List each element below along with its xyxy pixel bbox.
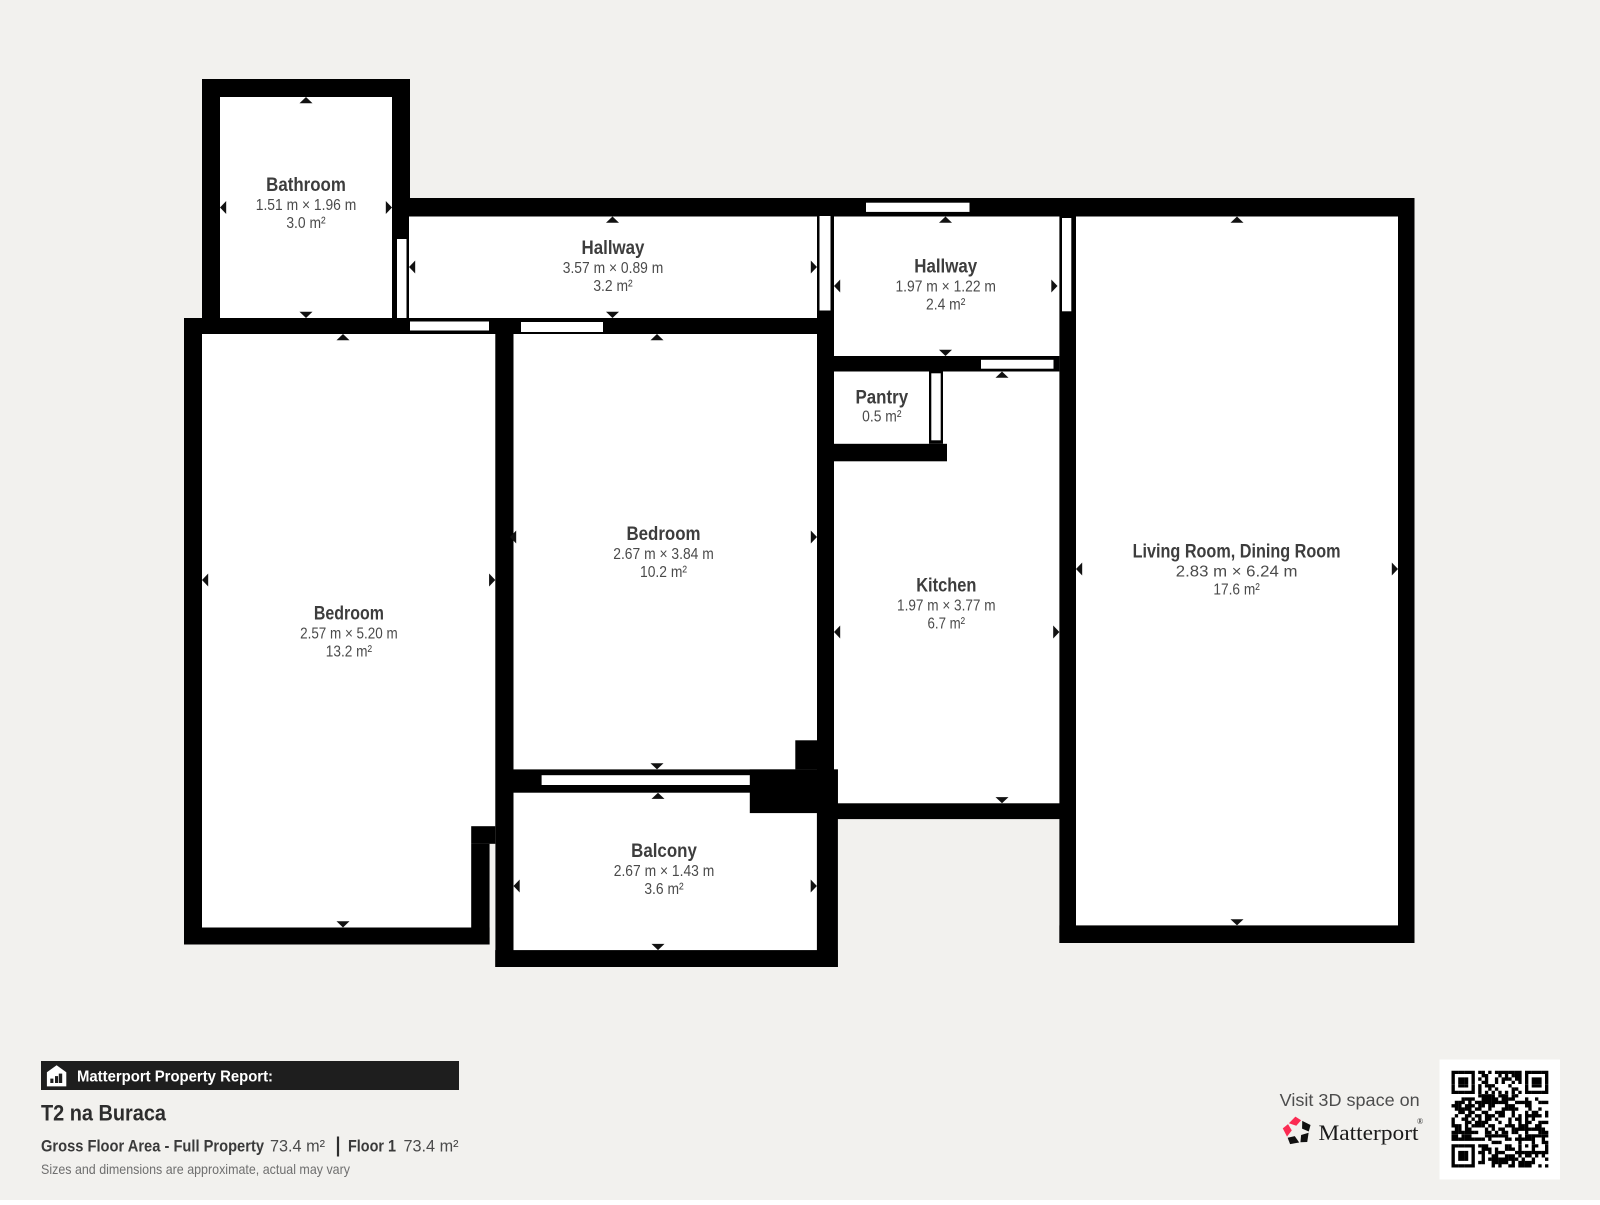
svg-text:Kitchen: Kitchen (916, 575, 976, 597)
svg-text:3.0 m²: 3.0 m² (286, 215, 326, 232)
svg-text:Bathroom: Bathroom (266, 174, 346, 196)
svg-text:1.97 m × 1.22 m: 1.97 m × 1.22 m (895, 278, 996, 295)
svg-text:Visit 3D space on: Visit 3D space on (1280, 1090, 1420, 1110)
svg-text:Bedroom: Bedroom (314, 603, 384, 625)
svg-text:Bedroom: Bedroom (626, 523, 700, 545)
svg-text:Gross Floor Area - Full Proper: Gross Floor Area - Full Property (41, 1137, 265, 1155)
svg-text:Matterport Property Report:: Matterport Property Report: (77, 1069, 273, 1086)
svg-text:®: ® (1417, 1117, 1423, 1126)
svg-text:73.4 m²: 73.4 m² (270, 1137, 325, 1155)
svg-text:10.2 m²: 10.2 m² (640, 564, 688, 581)
svg-text:2.4 m²: 2.4 m² (926, 296, 966, 313)
svg-text:T2 na Buraca: T2 na Buraca (41, 1101, 167, 1126)
svg-text:2.67 m × 3.84 m: 2.67 m × 3.84 m (613, 546, 714, 563)
svg-text:Hallway: Hallway (914, 255, 977, 277)
svg-text:2.83 m × 6.24 m: 2.83 m × 6.24 m (1176, 563, 1298, 580)
svg-text:3.6 m²: 3.6 m² (644, 881, 684, 898)
svg-text:Sizes and dimensions are appro: Sizes and dimensions are approximate, ac… (41, 1161, 350, 1177)
svg-text:13.2 m²: 13.2 m² (326, 644, 373, 661)
svg-text:Matterport: Matterport (1319, 1120, 1419, 1145)
svg-text:6.7 m²: 6.7 m² (928, 616, 966, 633)
svg-text:3.57 m × 0.89 m: 3.57 m × 0.89 m (563, 260, 664, 277)
svg-text:0.5 m²: 0.5 m² (862, 409, 902, 426)
svg-text:Balcony: Balcony (631, 840, 697, 862)
svg-text:1.97 m × 3.77 m: 1.97 m × 3.77 m (897, 598, 996, 615)
svg-text:17.6 m²: 17.6 m² (1213, 581, 1260, 598)
svg-text:73.4 m²: 73.4 m² (404, 1137, 459, 1155)
svg-text:Pantry: Pantry (856, 387, 909, 409)
svg-text:Floor 1: Floor 1 (348, 1137, 396, 1155)
svg-text:1.51 m × 1.96 m: 1.51 m × 1.96 m (256, 197, 357, 214)
svg-text:2.57 m × 5.20 m: 2.57 m × 5.20 m (300, 626, 398, 643)
svg-text:Hallway: Hallway (582, 237, 645, 259)
svg-text:2.67 m × 1.43 m: 2.67 m × 1.43 m (614, 863, 715, 880)
svg-text:Living Room, Dining Room: Living Room, Dining Room (1133, 540, 1341, 562)
svg-text:3.2 m²: 3.2 m² (593, 278, 633, 295)
